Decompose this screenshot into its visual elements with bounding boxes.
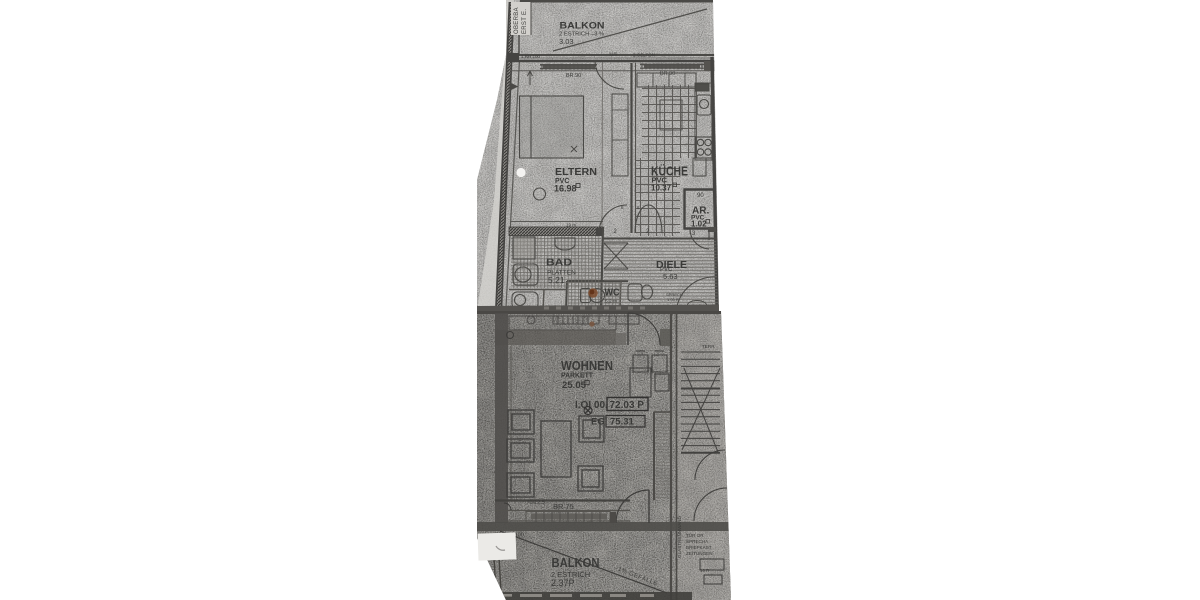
svg-text:25.05: 25.05 [562,380,587,391]
svg-text:WOHNEN: WOHNEN [561,358,613,373]
svg-text:11/9: 11/9 [609,52,618,57]
svg-text:♡: ♡ [537,531,543,539]
svg-text:1.05 R: 1.05 R [667,297,679,302]
svg-text:EG: EG [591,417,605,428]
svg-text:OBERBA: OBERBA [514,7,520,34]
svg-text:PARKETT: PARKETT [561,373,594,380]
svg-text:ZEITUNGEN: ZEITUNGEN [686,551,713,556]
svg-text:TÜR OR: TÜR OR [686,532,704,538]
svg-text:BR 90: BR 90 [660,71,675,77]
svg-text:BALKON: BALKON [552,556,600,570]
svg-text:ELTERN: ELTERN [555,166,597,178]
svg-text:BR 75: BR 75 [553,502,574,511]
svg-text:2 OELTON: 2 OELTON [633,53,655,58]
svg-text:WC: WC [605,287,620,299]
svg-text:ERST E.: ERST E. [522,9,528,34]
svg-text:5.63: 5.63 [663,272,678,281]
svg-text:2.37P: 2.37P [551,578,575,588]
svg-text:70/12.5: 70/12.5 [527,500,545,506]
svg-text:75.31: 75.31 [610,417,634,428]
svg-text:BALKON: BALKON [560,21,605,32]
svg-text:SPRECHA: SPRECHA [686,539,709,544]
svg-text:BR 90: BR 90 [566,73,581,79]
svg-text:GLASTRENNWAND: GLASTRENNWAND [677,515,682,558]
svg-text:72.03 P: 72.03 P [610,400,645,411]
svg-text:16.98: 16.98 [554,184,577,194]
svg-text:90: 90 [697,193,704,199]
svg-text:5.2 m: 5.2 m [605,299,617,305]
svg-text:5.21: 5.21 [548,275,565,285]
svg-text:TERR: TERR [702,344,715,349]
svg-text:3.03: 3.03 [559,37,574,46]
svg-text:BRIEFKAST: BRIEFKAST [686,545,712,550]
svg-text:BAD: BAD [546,258,572,269]
svg-text:10.37: 10.37 [651,184,672,193]
svg-text:19 m: 19 m [566,223,576,228]
svg-text:1.RH 100: 1.RH 100 [521,54,541,59]
svg-text:1.02: 1.02 [691,220,707,229]
